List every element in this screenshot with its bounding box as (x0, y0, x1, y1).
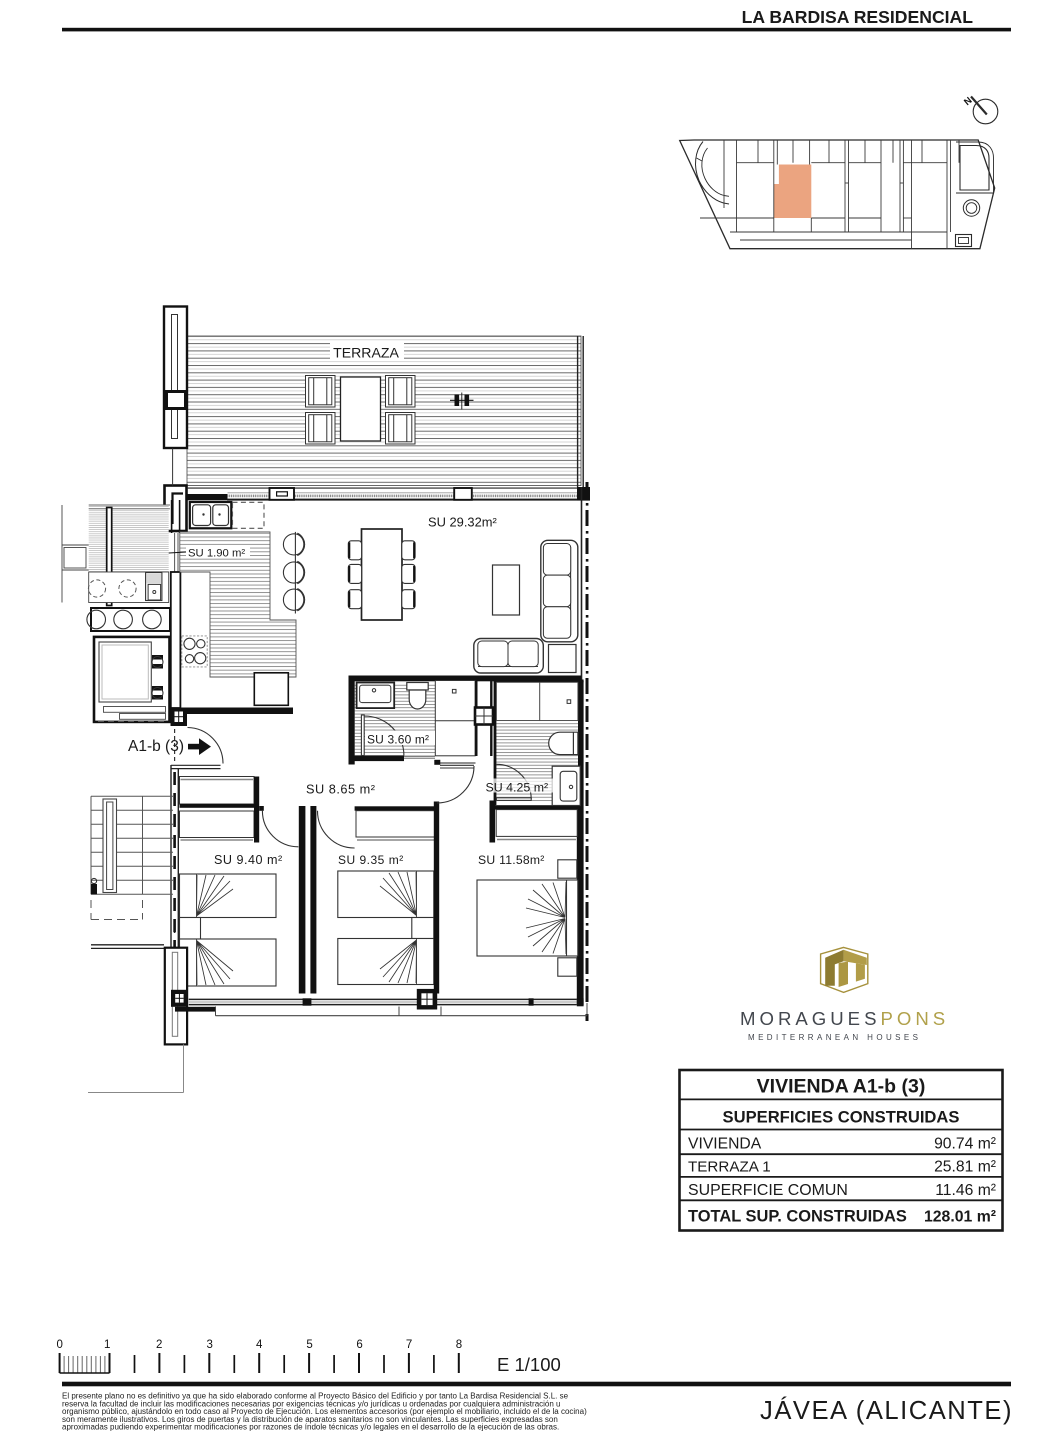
svg-text:LA BARDISA RESIDENCIAL: LA BARDISA RESIDENCIAL (742, 7, 974, 27)
svg-text:SU 9.40 m²: SU 9.40 m² (214, 853, 283, 867)
svg-text:4: 4 (256, 1339, 263, 1351)
svg-text:SU 29.32m²: SU 29.32m² (428, 515, 497, 530)
svg-text:SUPERFICIES CONSTRUIDAS: SUPERFICIES CONSTRUIDAS (723, 1108, 960, 1127)
svg-text:MORAGUESPONS: MORAGUESPONS (740, 1008, 949, 1029)
svg-text:A1-b (3): A1-b (3) (128, 738, 184, 755)
svg-text:VIVIENDA: VIVIENDA (688, 1136, 762, 1153)
svg-text:SU 8.65 m²: SU 8.65 m² (306, 782, 375, 797)
svg-text:7: 7 (406, 1339, 412, 1351)
svg-text:5: 5 (306, 1339, 312, 1351)
svg-text:E 1/100: E 1/100 (497, 1354, 561, 1375)
svg-text:90.74 m²: 90.74 m² (934, 1136, 996, 1153)
svg-text:3: 3 (207, 1339, 213, 1351)
svg-text:SU 11.58m²: SU 11.58m² (478, 853, 545, 867)
svg-text:8: 8 (456, 1339, 462, 1351)
svg-text:6: 6 (356, 1339, 362, 1351)
svg-text:1: 1 (104, 1339, 110, 1351)
svg-text:25.81 m²: 25.81 m² (934, 1159, 996, 1176)
svg-text:SU 3.60 m²: SU 3.60 m² (367, 733, 429, 747)
svg-text:TOTAL SUP. CONSTRUIDAS: TOTAL SUP. CONSTRUIDAS (688, 1208, 907, 1226)
svg-text:0: 0 (57, 1339, 63, 1351)
svg-text:128.01 m²: 128.01 m² (924, 1209, 996, 1226)
svg-text:aproximadas pudiendo experimen: aproximadas pudiendo experimentar modifi… (62, 1423, 559, 1432)
svg-text:VIVIENDA A1-b (3): VIVIENDA A1-b (3) (757, 1076, 926, 1098)
svg-text:TERRAZA 1: TERRAZA 1 (688, 1159, 771, 1176)
svg-text:JÁVEA (ALICANTE): JÁVEA (ALICANTE) (760, 1396, 1013, 1425)
svg-text:11.46 m²: 11.46 m² (935, 1182, 996, 1199)
svg-text:SUPERFICIE COMUN: SUPERFICIE COMUN (688, 1182, 848, 1199)
svg-text:TERRAZA: TERRAZA (333, 345, 399, 361)
svg-text:SU 4.25 m²: SU 4.25 m² (486, 781, 549, 795)
svg-text:SU 1.90 m²: SU 1.90 m² (188, 548, 245, 560)
svg-text:2: 2 (156, 1339, 162, 1351)
svg-text:SU 9.35 m²: SU 9.35 m² (338, 853, 404, 867)
svg-text:MEDITERRANEAN HOUSES: MEDITERRANEAN HOUSES (748, 1033, 921, 1042)
